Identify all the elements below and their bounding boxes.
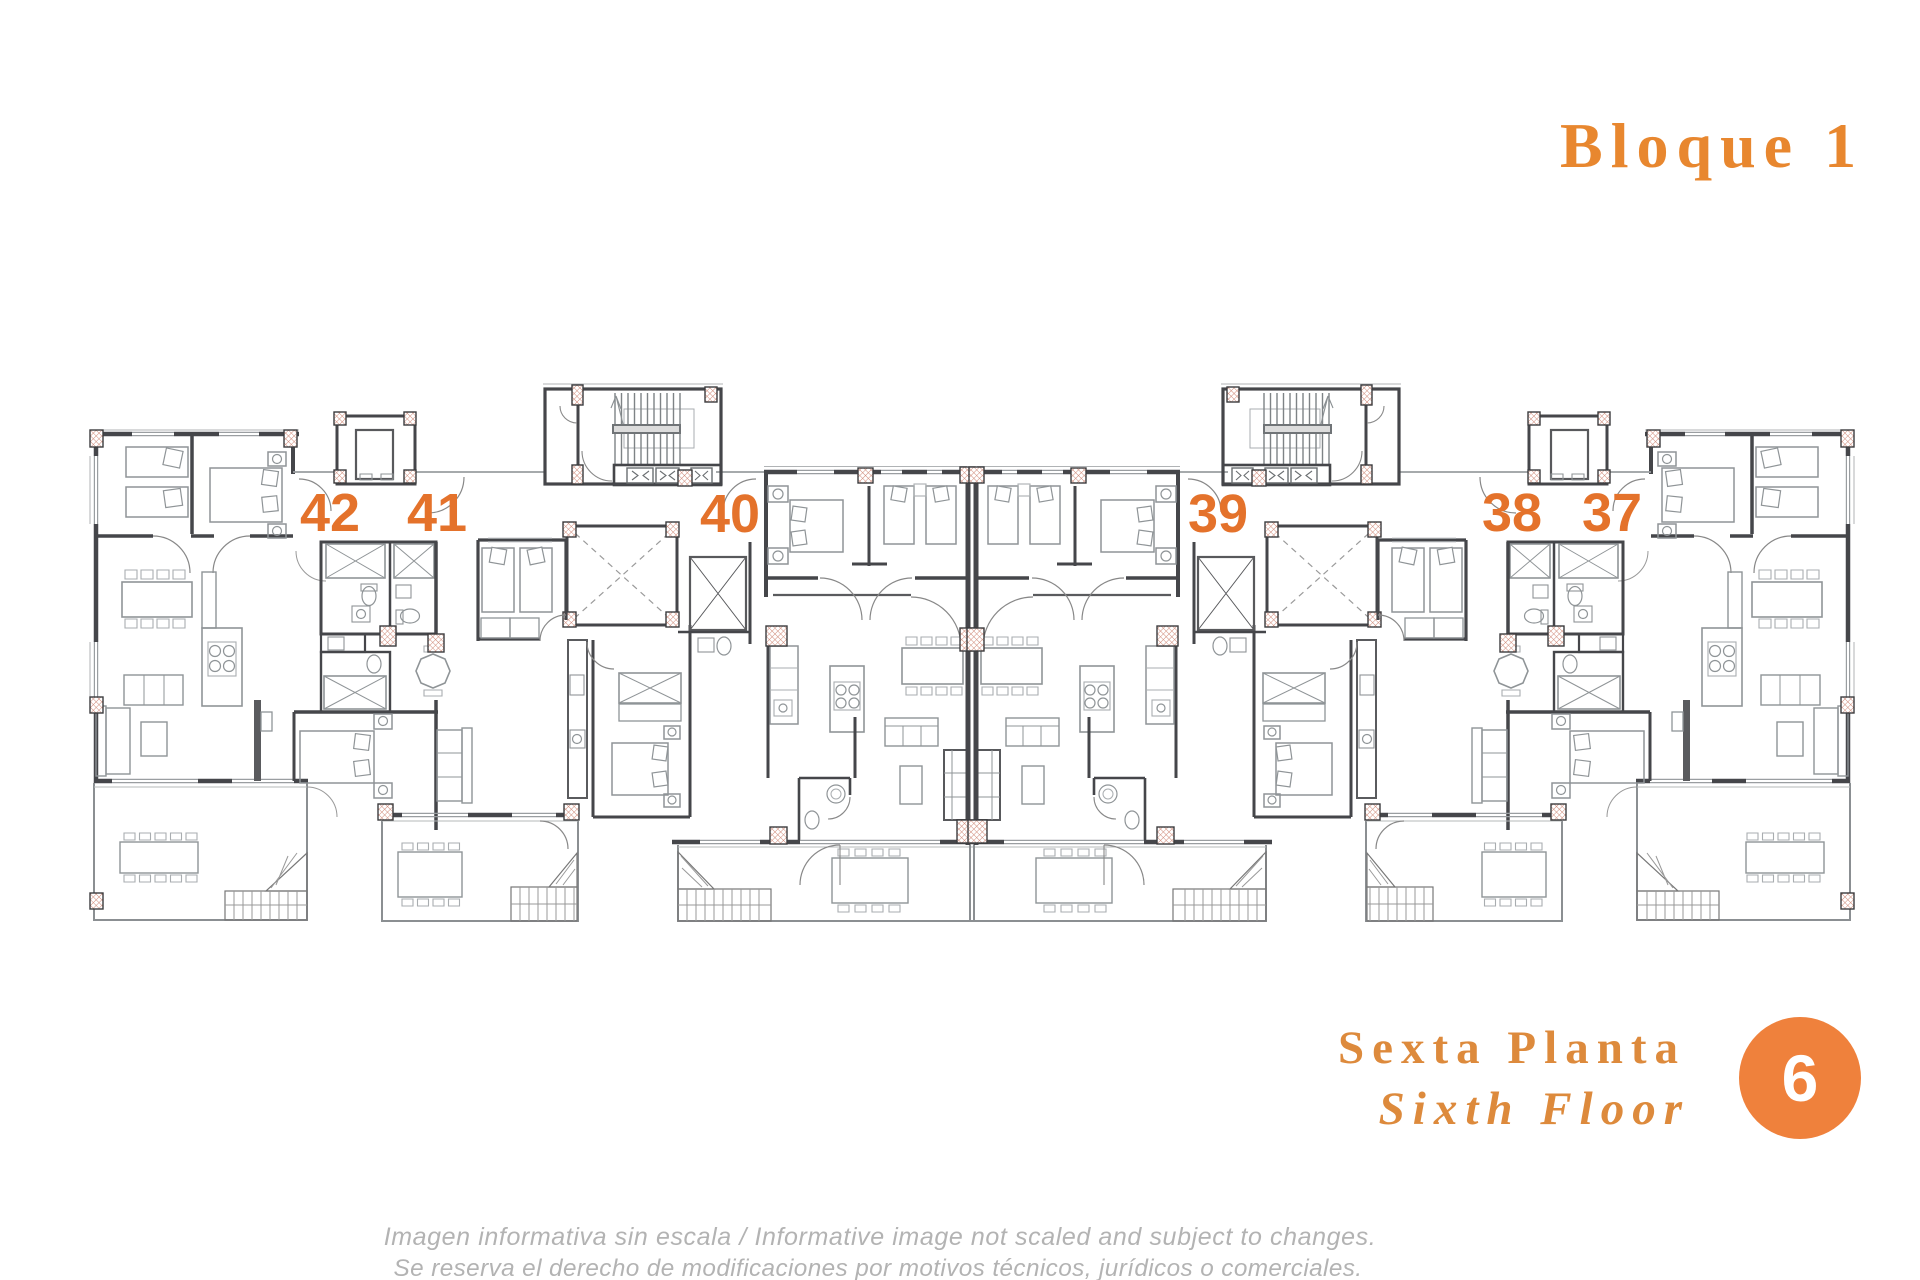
svg-text:Sixth Floor: Sixth Floor	[1379, 1083, 1690, 1135]
svg-text:41: 41	[407, 483, 467, 543]
svg-text:6: 6	[1782, 1041, 1819, 1115]
svg-text:Se reserva el derecho de modif: Se reserva el derecho de modificaciones …	[394, 1255, 1363, 1280]
svg-text:39: 39	[1188, 484, 1248, 544]
svg-text:40: 40	[700, 484, 760, 544]
svg-text:Imagen informativa sin escala: Imagen informativa sin escala / Informat…	[384, 1223, 1377, 1251]
svg-text:38: 38	[1482, 483, 1542, 543]
svg-text:37: 37	[1582, 483, 1642, 543]
svg-text:Bloque 1: Bloque 1	[1560, 110, 1864, 181]
svg-text:Sexta Planta: Sexta Planta	[1338, 1022, 1686, 1074]
svg-text:42: 42	[300, 483, 360, 543]
